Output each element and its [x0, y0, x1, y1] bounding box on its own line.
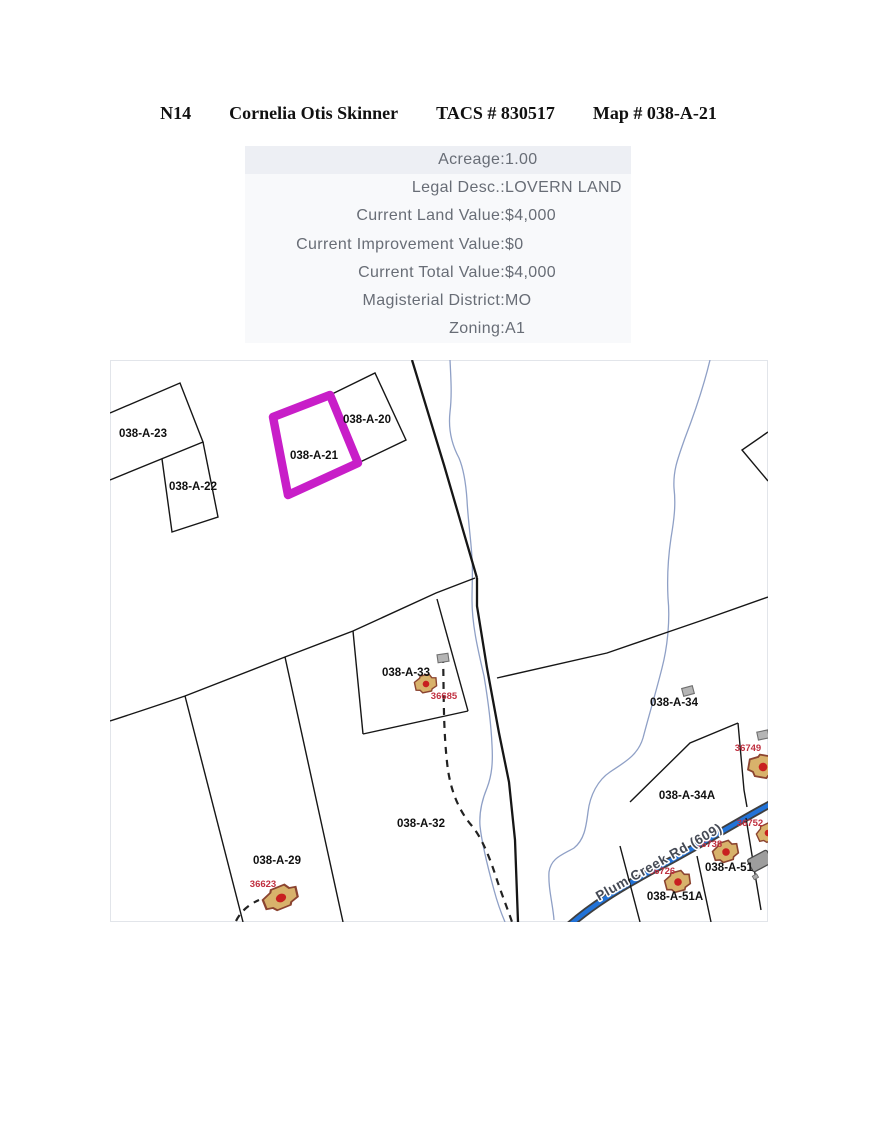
info-value: $4,000 [505, 264, 631, 282]
info-label: Magisterial District: [245, 292, 505, 310]
shed-icon [437, 653, 449, 662]
info-value: $4,000 [505, 207, 631, 225]
info-row-acreage: Acreage: 1.00 [245, 146, 631, 174]
parcel-boundaries [110, 360, 768, 922]
shed-icon [682, 686, 695, 697]
parcel-labels: 038-A-23 038-A-22 038-A-21 038-A-20 038-… [119, 414, 754, 903]
house-icon [747, 753, 768, 780]
house-number-36685: 36685 [431, 691, 458, 702]
creek-lines [449, 360, 710, 922]
parcel-label-038-A-20: 038-A-20 [343, 414, 391, 426]
house-number-36623: 36623 [250, 879, 276, 890]
info-row-zoning: Zoning: A1 [245, 315, 631, 343]
property-info-panel: Acreage: 1.00 Legal Desc.: LOVERN LAND C… [245, 146, 631, 343]
parcel-label-038-A-29: 038-A-29 [253, 855, 301, 867]
property-report-page: N14 Cornelia Otis Skinner TACS # 830517 … [0, 0, 877, 1135]
parcel-label-038-A-23: 038-A-23 [119, 428, 167, 440]
info-row-magisterial-district: Magisterial District: MO [245, 287, 631, 315]
info-row-improvement-value: Current Improvement Value: $0 [245, 231, 631, 259]
parcel-label-038-A-33: 038-A-33 [382, 667, 430, 679]
creek-central [449, 360, 505, 922]
creek-right [549, 360, 710, 920]
info-value: A1 [505, 320, 631, 338]
info-label: Zoning: [245, 320, 505, 338]
parcel-label-038-A-51: 038-A-51 [705, 862, 754, 874]
page-title: N14 Cornelia Otis Skinner TACS # 830517 … [0, 103, 877, 124]
info-label: Current Land Value: [245, 207, 505, 225]
small-outbuilding-icon [752, 874, 758, 880]
parcel-label-038-A-21: 038-A-21 [290, 450, 339, 462]
info-row-legal-desc: Legal Desc.: LOVERN LAND [245, 174, 631, 202]
info-label: Acreage: [245, 151, 505, 169]
info-label: Current Total Value: [245, 264, 505, 282]
parcel-label-038-A-51A: 038-A-51A [647, 891, 703, 903]
driveway-dashed-lines [236, 656, 512, 922]
parcel-label-038-A-34A: 038-A-34A [659, 790, 715, 802]
parcel-map: 038-A-23 038-A-22 038-A-21 038-A-20 038-… [110, 360, 768, 922]
info-row-land-value: Current Land Value: $4,000 [245, 202, 631, 230]
house-number-36749: 36749 [735, 743, 761, 754]
info-label: Current Improvement Value: [245, 236, 505, 254]
title-owner-name: Cornelia Otis Skinner [229, 103, 398, 124]
highlighted-parcel-outline [273, 395, 358, 495]
title-n-code: N14 [160, 103, 191, 124]
house-number-36752: 36752 [737, 818, 763, 829]
info-value: $0 [505, 236, 631, 254]
title-map-number: Map # 038-A-21 [593, 103, 717, 124]
info-value: LOVERN LAND [505, 179, 631, 197]
info-row-total-value: Current Total Value: $4,000 [245, 259, 631, 287]
parcel-map-svg: 038-A-23 038-A-22 038-A-21 038-A-20 038-… [110, 360, 768, 922]
building-icons [260, 653, 768, 914]
parcel-label-038-A-32: 038-A-32 [397, 818, 445, 830]
title-tacs-number: TACS # 830517 [436, 103, 555, 124]
info-value: 1.00 [505, 151, 631, 169]
parcel-label-038-A-34: 038-A-34 [650, 697, 699, 709]
info-label: Legal Desc.: [245, 179, 505, 197]
parcel-label-038-A-22: 038-A-22 [169, 481, 217, 493]
info-value: MO [505, 292, 631, 310]
shed-icon [757, 730, 768, 740]
